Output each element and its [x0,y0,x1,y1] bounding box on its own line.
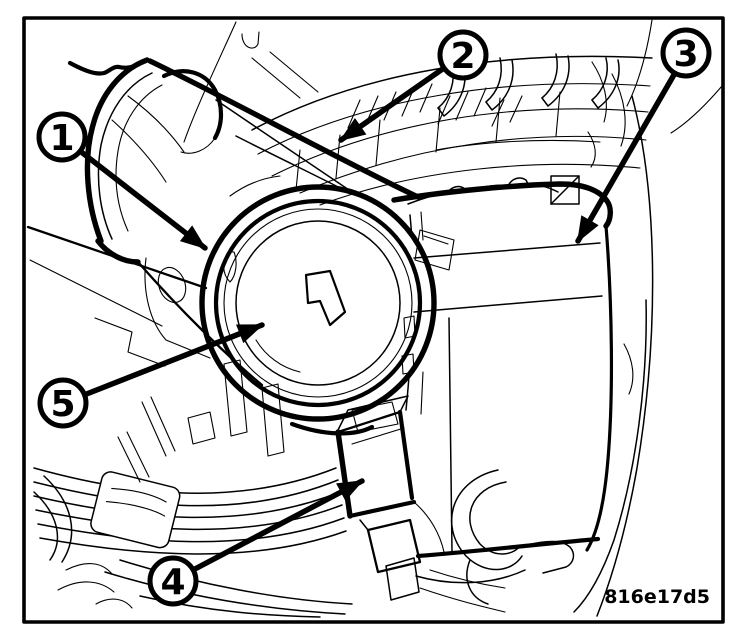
technical-illustration: 1 2 3 4 5 816e17d5 [0,0,752,640]
steering-column-shroud [28,22,418,385]
callout-3-number: 3 [673,34,698,75]
key-slot [306,271,345,325]
callout-3-arrow [578,73,675,241]
callout-2-number: 2 [450,36,475,77]
callout-1-number: 1 [49,118,74,159]
ignition-lock-cylinder [202,187,454,432]
figure-id-label: 816e17d5 [604,586,710,608]
harness-tape-wrap [89,470,182,550]
callout-4: 4 [150,481,362,604]
electrical-connector [292,396,522,612]
callout-2-arrow [341,68,444,140]
callout-4-arrow [193,481,362,570]
diagram-page: 1 2 3 4 5 816e17d5 [0,0,752,640]
callout-5-number: 5 [50,384,75,425]
callout-4-number: 4 [160,562,185,603]
